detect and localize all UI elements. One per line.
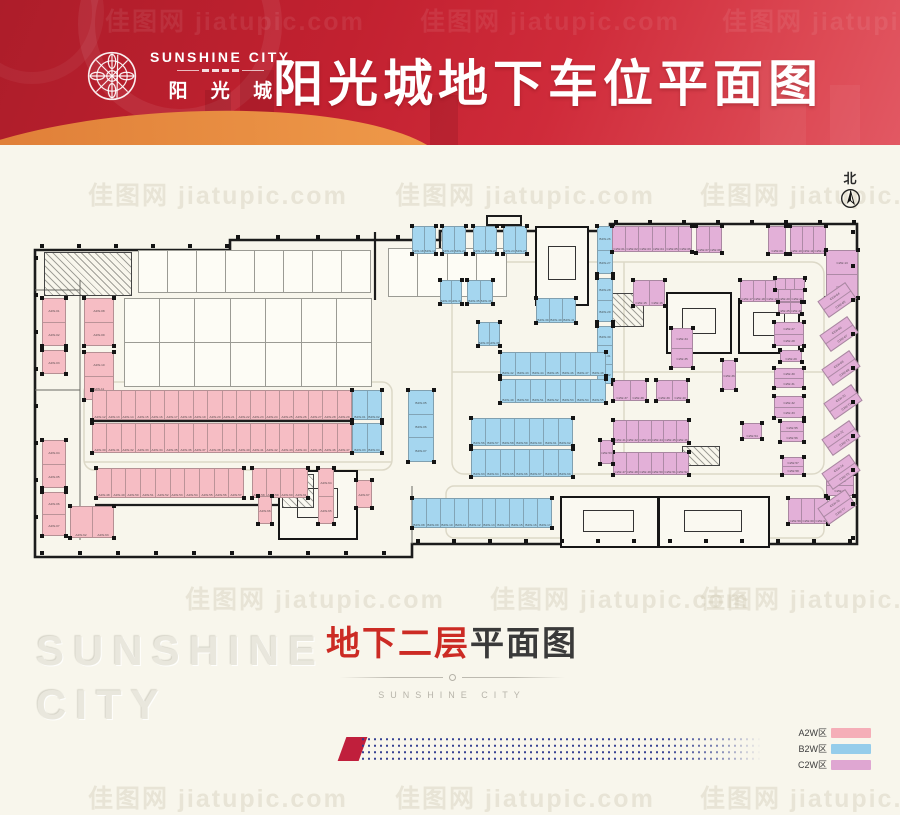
parking-stall: C2W-08	[710, 227, 722, 252]
parking-stall: A2W-48	[97, 469, 112, 497]
parking-stall: B2W-59	[515, 419, 529, 445]
parking-stall: B2W-61	[544, 419, 558, 445]
parking-cluster-a2w: A2W-06A2W-07	[42, 492, 66, 536]
structural-column	[654, 399, 658, 403]
parking-cluster-b2w: B2W-37B2W-38	[478, 322, 500, 346]
parking-stall-label: C2W-30	[783, 373, 794, 377]
structural-column	[380, 388, 384, 392]
structural-column	[786, 496, 790, 500]
structural-column	[82, 344, 86, 348]
parking-stall-label: B2W-35	[468, 299, 479, 303]
structural-column	[812, 539, 816, 543]
parking-stall: A2W-13	[107, 391, 121, 419]
parking-cluster-c2w: C2W-25C2W-26	[778, 302, 802, 314]
parking-stall-label: C2W-05	[666, 247, 677, 251]
structural-column	[686, 399, 690, 403]
structural-column	[645, 378, 649, 382]
storage-cell	[336, 298, 372, 343]
parking-stall: C2W-57	[783, 458, 803, 467]
parking-cluster-a2w: A2W-30A2W-31A2W-32A2W-33A2W-34A2W-35A2W-…	[92, 423, 352, 453]
parking-cluster-b2w: B2W-28B2W-29	[597, 278, 613, 322]
structural-column	[851, 434, 855, 438]
structural-column	[669, 366, 673, 370]
structural-column	[645, 399, 649, 403]
parking-stall: A2W-32	[122, 424, 136, 452]
structural-column	[760, 421, 764, 425]
structural-column	[595, 276, 599, 280]
parking-stall: B2W-15	[510, 499, 524, 527]
parking-stall-label: C2W-44	[652, 438, 663, 442]
parking-stall-label: C2W-36	[723, 374, 734, 378]
parking-stall: B2W-21	[455, 227, 466, 253]
parking-stall-label: A2W-61	[295, 493, 306, 497]
structural-column	[40, 244, 44, 248]
parking-stall: A2W-62	[71, 507, 93, 537]
parking-stall-label: C2W-50	[652, 470, 663, 474]
parking-stall: B2W-35	[468, 281, 481, 303]
parking-stall: B2W-69	[559, 450, 572, 476]
storage-cell	[159, 298, 195, 343]
storage-cell	[254, 250, 284, 293]
parking-cluster-b2w: B2W-05B2W-06B2W-07	[408, 390, 434, 462]
structural-column	[471, 224, 475, 228]
parking-stall: C2W-18	[754, 281, 767, 301]
structural-column	[604, 350, 608, 354]
parking-stall: A2W-17	[165, 391, 179, 419]
structural-column	[34, 515, 38, 519]
parking-stall-label: B2W-50	[517, 398, 528, 402]
parking-stall-label: C2W-53	[601, 451, 612, 455]
parking-stall-label: C2W-09	[771, 249, 782, 253]
structural-column	[370, 506, 374, 510]
parking-stall: B2W-22	[474, 227, 486, 253]
parking-stall: B2W-33	[441, 281, 452, 303]
parking-stall: C2W-36	[723, 361, 735, 389]
structural-column	[802, 473, 806, 477]
parking-cluster-c2w: C2W-15C2W-16	[633, 280, 665, 306]
structural-column	[64, 490, 68, 494]
structural-column	[491, 278, 495, 282]
parking-stall: C2W-42	[627, 421, 640, 442]
parking-stall-label: C2W-38	[633, 396, 644, 400]
structural-column	[34, 256, 38, 260]
parking-stall: C2W-05	[666, 227, 679, 251]
parking-stall-label: B2W-30	[599, 335, 610, 339]
structural-column	[694, 251, 698, 255]
parking-stall-label: B2W-66	[516, 472, 527, 476]
parking-cluster-b2w: B2W-20B2W-21	[442, 226, 466, 254]
caption-block: 地下二层平面图 SUNSHINE CITY	[322, 616, 582, 700]
parking-stall-label: B2W-59	[516, 441, 527, 445]
ghost-line1: SUNSHINE	[36, 624, 325, 678]
parking-stall-label: B2W-48	[592, 371, 603, 375]
structural-column	[720, 388, 724, 392]
parking-stall: A2W-55	[200, 469, 215, 497]
structural-column	[94, 466, 98, 470]
parking-stall-label: C2W-27	[783, 328, 794, 332]
parking-stall-label: A2W-53	[172, 493, 183, 497]
parking-stall: B2W-47	[576, 353, 591, 375]
structural-column	[476, 320, 480, 324]
parking-stall-label: B2W-15	[511, 523, 522, 527]
parking-stall-label: C2W-07	[697, 248, 708, 252]
structural-column	[488, 539, 492, 543]
storage-cell	[230, 298, 266, 343]
parking-stall-label: C2W-01	[613, 247, 624, 251]
parking-stall-label: C2W-42	[627, 438, 638, 442]
parking-stall: C2W-60	[802, 499, 815, 523]
parking-stall-label: B2W-27	[599, 261, 610, 265]
storage-cell	[194, 342, 230, 387]
parking-stall-label: B2W-16	[525, 523, 536, 527]
parking-stall-label: A2W-41	[252, 448, 263, 452]
legend-row: B2W区	[798, 742, 871, 755]
parking-stall-label: A2W-54	[186, 493, 197, 497]
parking-stall: B2W-16	[524, 499, 538, 527]
parking-cluster-b2w: B2W-33B2W-34	[440, 280, 462, 304]
structural-column	[571, 447, 575, 451]
parking-stall: C2W-58	[783, 467, 803, 475]
structural-column	[738, 300, 742, 304]
parking-stall: A2W-18	[179, 391, 193, 419]
stair-core	[535, 226, 589, 306]
parking-stall-label: A2W-42	[267, 448, 278, 452]
structural-column	[452, 539, 456, 543]
structural-column	[154, 551, 158, 555]
structural-column	[68, 504, 72, 508]
parking-stall-label: B2W-09	[428, 523, 439, 527]
parking-stall-label: B2W-49	[502, 398, 513, 402]
parking-stall: C2W-10	[791, 227, 803, 253]
parking-cluster-a2w: A2W-64A2W-65	[318, 468, 334, 524]
parking-stall: A2W-65	[319, 497, 333, 524]
structural-column	[611, 276, 615, 280]
structural-column	[498, 344, 502, 348]
structural-column	[598, 438, 602, 442]
structural-column	[380, 421, 384, 425]
parking-plan-poster: { "header": { "brand_en": "SUNSHINE CITY…	[0, 0, 900, 810]
parking-stall-label: C2W-33	[783, 412, 794, 416]
parking-stall: A2W-52	[156, 469, 171, 497]
parking-stall-label: B2W-61	[545, 441, 556, 445]
structural-column	[82, 398, 86, 402]
structural-column	[316, 235, 320, 239]
parking-stall-label: C2W-39	[659, 396, 670, 400]
structural-column	[40, 296, 44, 300]
structural-column	[614, 220, 618, 224]
parking-stall: B2W-36	[481, 281, 493, 303]
structural-column	[776, 300, 780, 304]
parking-stall-label: C2W-18	[754, 297, 765, 301]
structural-column	[571, 416, 575, 420]
structural-column	[851, 230, 855, 234]
storage-cell	[265, 298, 301, 343]
structural-column	[851, 502, 855, 506]
caption-divider	[340, 674, 565, 681]
parking-stall: C2W-56	[781, 432, 803, 441]
parking-stall-label: A2W-48	[98, 493, 109, 497]
stair-core	[560, 496, 659, 548]
legend-row: C2W区	[798, 758, 871, 771]
parking-stall: A2W-56	[215, 469, 230, 497]
structural-column	[720, 224, 724, 228]
parking-stall-label: C2W-60	[802, 519, 813, 523]
structural-column	[90, 421, 94, 425]
structural-column	[501, 252, 505, 256]
parking-stall-label: C2W-32	[783, 401, 794, 405]
parking-stall-label: A2W-49	[113, 493, 124, 497]
structural-column	[34, 367, 38, 371]
structural-column	[225, 244, 229, 248]
parking-stall-label: B2W-54	[577, 398, 588, 402]
parking-stall-label: B2W-02	[369, 415, 380, 419]
parking-stall: A2W-04	[43, 441, 65, 465]
parking-stall: C2W-17	[741, 281, 754, 301]
parking-stall: C2W-44	[652, 421, 665, 442]
parking-stall: A2W-31	[107, 424, 121, 452]
parking-stall-label: C2W-06	[679, 247, 690, 251]
structural-column	[691, 366, 695, 370]
parking-stall-label: C2W-04	[653, 247, 664, 251]
structural-column	[112, 504, 116, 508]
parking-stall: B2W-17	[538, 499, 551, 527]
structural-column	[34, 293, 38, 297]
structural-column	[800, 312, 804, 316]
parking-stall-label: A2W-07	[48, 524, 59, 528]
parking-stall: A2W-53	[171, 469, 186, 497]
structural-column	[780, 455, 784, 459]
parking-stall-label: B2W-07	[415, 449, 426, 453]
parking-cluster-c2w: C2W-34C2W-35	[671, 328, 693, 368]
parking-stall-label: B2W-51	[532, 398, 543, 402]
parking-stall: A2W-06	[43, 493, 65, 515]
legend-label: A2W区	[798, 726, 827, 739]
parking-cluster-b2w: B2W-49B2W-50B2W-51B2W-52B2W-53B2W-54B2W-…	[500, 379, 606, 403]
parking-stall-label: B2W-56	[473, 441, 484, 445]
parking-stall-label: C2W-28	[783, 339, 794, 343]
parking-stall-label: A2W-29	[339, 415, 350, 419]
parking-stall: A2W-35	[165, 424, 179, 452]
parking-stall: B2W-28	[598, 279, 612, 301]
parking-stall-label: A2W-17	[166, 415, 177, 419]
structural-column	[498, 401, 502, 405]
parking-cluster-c2w: C2W-53	[600, 440, 613, 464]
parking-stall: B2W-30	[598, 327, 612, 346]
parking-cluster-c2w: C2W-37C2W-38	[613, 380, 647, 401]
parking-stall-label: C2W-45	[664, 438, 675, 442]
parking-stall-label: A2W-39	[224, 448, 235, 452]
parking-stall: B2W-12	[469, 499, 483, 527]
structural-column	[78, 551, 82, 555]
parking-stall-label: A2W-55	[201, 493, 212, 497]
parking-stall-label: C2W-02	[627, 247, 638, 251]
parking-stall-label: B2W-39	[537, 318, 548, 322]
parking-stall: B2W-23	[486, 227, 497, 253]
caption-highlight: 地下二层	[326, 625, 470, 663]
parking-stall-label: B2W-05	[415, 402, 426, 406]
caption-title: 地下二层平面图	[322, 616, 582, 665]
structural-column	[818, 220, 822, 224]
stair-core	[658, 496, 770, 548]
structural-column	[596, 539, 600, 543]
parking-cluster-a2w: A2W-04A2W-05	[42, 440, 66, 488]
parking-stall-label: C2W-40	[674, 396, 685, 400]
parking-stall: C2W-30	[775, 369, 803, 379]
parking-stall: A2W-22	[237, 391, 251, 419]
parking-stall: C2W-34	[672, 329, 692, 349]
parking-stall-label: B2W-33	[441, 299, 451, 303]
structural-column	[116, 551, 120, 555]
parking-stall: A2W-12	[93, 391, 107, 419]
structural-column	[687, 473, 691, 477]
structural-column	[772, 366, 776, 370]
structural-column	[356, 235, 360, 239]
parking-stall-label: C2W-20	[779, 297, 790, 301]
parking-stall-label: B2W-40	[550, 318, 561, 322]
parking-stall-label: A2W-44	[296, 448, 307, 452]
structural-column	[242, 466, 246, 470]
parking-stall-label: B2W-12	[470, 523, 481, 527]
storage-cell	[167, 250, 197, 293]
structural-column	[851, 332, 855, 336]
parking-stall: C2W-55	[781, 422, 803, 432]
parking-stall-label: A2W-04	[48, 452, 59, 456]
parking-stall: A2W-61	[294, 469, 307, 497]
structural-column	[90, 451, 94, 455]
parking-stall: B2W-38	[490, 323, 500, 345]
caption-subtitle: SUNSHINE CITY	[322, 690, 582, 700]
parking-stall: B2W-25	[516, 227, 527, 253]
parking-stall-label: B2W-41	[563, 318, 574, 322]
storage-cell	[138, 250, 168, 293]
structural-column	[410, 252, 414, 256]
parking-stall: A2W-05	[43, 465, 65, 488]
structural-column	[734, 358, 738, 362]
parking-stall: C2W-39	[657, 381, 673, 400]
parking-stall: A2W-14	[122, 391, 136, 419]
parking-stall: C2W-07	[697, 227, 710, 252]
parking-stall	[786, 279, 796, 289]
parking-stall-label: A2W-40	[238, 448, 249, 452]
structural-column	[776, 312, 780, 316]
parking-stall: B2W-68	[544, 450, 558, 476]
parking-stall: A2W-30	[93, 424, 107, 452]
parking-stall: C2W-43	[639, 421, 652, 442]
parking-stall-label: A2W-06	[48, 503, 59, 507]
parking-stall: B2W-66	[515, 450, 529, 476]
structural-column	[306, 466, 310, 470]
parking-stall: B2W-40	[550, 299, 563, 322]
parking-stall-label: B2W-43	[517, 371, 528, 375]
parking-stall: C2W-06	[679, 227, 691, 251]
structural-column	[460, 278, 464, 282]
parking-stall-label: A2W-57	[231, 493, 242, 497]
parking-stall: B2W-48	[591, 353, 605, 375]
structural-column	[476, 344, 480, 348]
parking-stall: B2W-09	[427, 499, 441, 527]
parking-stall: A2W-21	[223, 391, 237, 419]
parking-stall: A2W-57	[229, 469, 243, 497]
parking-stall-label: C2W-15	[636, 301, 647, 305]
structural-column	[256, 522, 260, 526]
structural-column	[350, 388, 354, 392]
structural-column	[852, 494, 856, 498]
parking-stall-label: A2W-67	[358, 493, 369, 497]
parking-stall: A2W-41	[251, 424, 265, 452]
parking-stall: B2W-24	[504, 227, 516, 253]
structural-column	[534, 321, 538, 325]
parking-cluster-c2w: C2W-47C2W-48C2W-49C2W-50C2W-51C2W-52	[613, 452, 689, 475]
structural-column	[851, 264, 855, 268]
parking-stall: B2W-41	[563, 299, 575, 322]
parking-stall: B2W-67	[530, 450, 544, 476]
parking-stall: C2W-03	[639, 227, 652, 251]
parking-stall-label: A2W-34	[152, 448, 163, 452]
structural-column	[772, 416, 776, 420]
parking-stall-label: B2W-64	[488, 472, 499, 476]
structural-column	[773, 276, 777, 280]
parking-stall-label: B2W-53	[562, 398, 573, 402]
parking-stall-label: A2W-33	[137, 448, 148, 452]
parking-stall-label: C2W-58	[787, 470, 798, 474]
structural-column	[631, 304, 635, 308]
structural-column	[604, 401, 608, 405]
parking-stall-label: A2W-20	[209, 415, 220, 419]
structural-column	[64, 438, 68, 442]
parking-stall-label: C2W-47	[614, 470, 625, 474]
parking-stall: C2W-37	[614, 381, 631, 400]
parking-cluster-a2w: A2W-12A2W-13A2W-14A2W-15A2W-16A2W-17A2W-…	[92, 390, 352, 420]
structural-column	[760, 437, 764, 441]
parking-stall: C2W-54	[743, 424, 761, 438]
parking-stall-label: B2W-01	[354, 415, 365, 419]
structural-column	[632, 539, 636, 543]
structural-column	[440, 224, 444, 228]
parking-cluster-b2w: B2W-24B2W-25	[503, 226, 527, 254]
parking-stall: B2W-37	[479, 323, 490, 345]
structural-column	[852, 220, 856, 224]
parking-stall: A2W-43	[280, 424, 294, 452]
structural-column	[316, 466, 320, 470]
structural-column	[571, 475, 575, 479]
structural-column	[560, 539, 564, 543]
parking-stall-label: A2W-09	[93, 333, 104, 337]
structural-column	[611, 378, 615, 382]
legend-label: B2W区	[798, 742, 827, 755]
parking-cluster-b2w: B2W-08B2W-09B2W-10B2W-11B2W-12B2W-13B2W-…	[412, 498, 552, 528]
structural-column	[188, 244, 192, 248]
parking-stall: C2W-49	[639, 453, 652, 474]
structural-column	[611, 324, 615, 328]
parking-stall: A2W-49	[112, 469, 127, 497]
structural-column	[306, 551, 310, 555]
structural-column	[112, 344, 116, 348]
parking-stall-label: B2W-22	[474, 249, 485, 253]
parking-stall: B2W-64	[486, 450, 500, 476]
parking-cluster-b2w: B2W-18B2W-19	[412, 226, 436, 254]
structural-column	[68, 536, 72, 540]
structural-column	[370, 478, 374, 482]
parking-stall-label: C2W-56	[786, 436, 797, 440]
parking-stall: B2W-50	[516, 380, 531, 402]
parking-stall-label: B2W-06	[415, 425, 426, 429]
parking-cluster-c2w: C2W-32C2W-33	[774, 396, 804, 418]
parking-stall-label: B2W-44	[532, 371, 543, 375]
parking-stall-label: B2W-29	[599, 310, 610, 314]
parking-stall: B2W-44	[531, 353, 546, 375]
structural-column	[824, 224, 828, 228]
structural-column	[469, 447, 473, 451]
